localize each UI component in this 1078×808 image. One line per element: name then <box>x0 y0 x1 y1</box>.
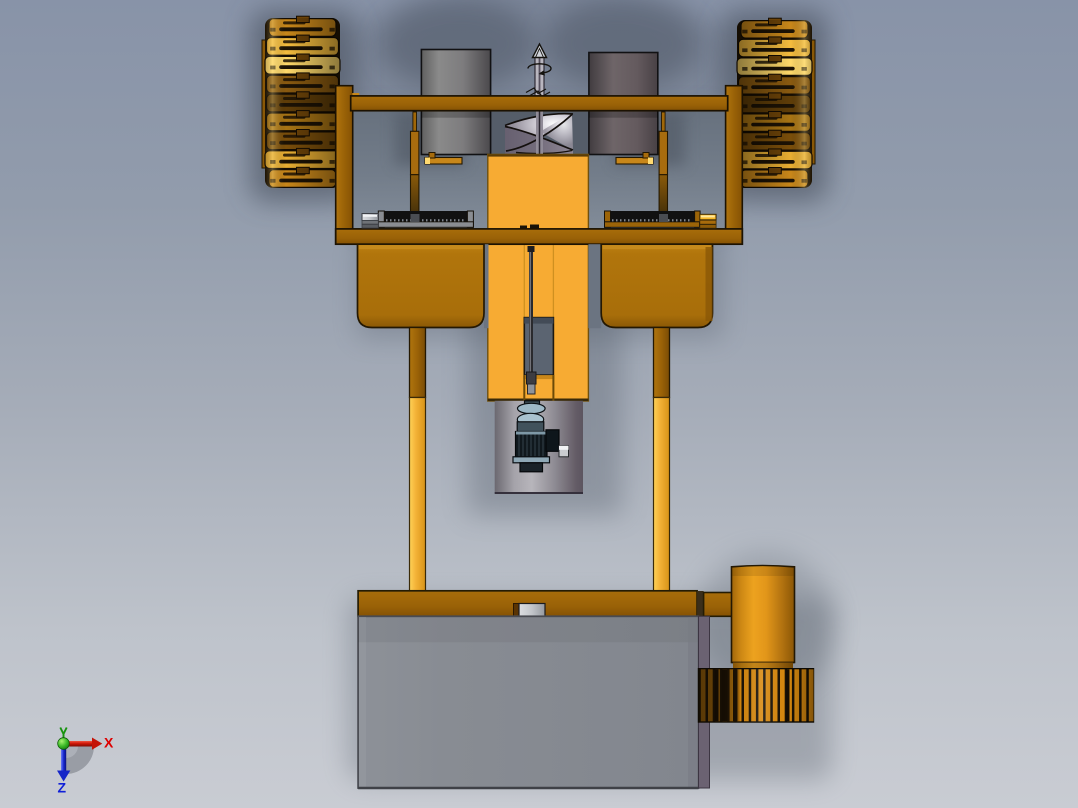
svg-text:Z: Z <box>58 780 67 796</box>
svg-text:X: X <box>104 735 114 751</box>
